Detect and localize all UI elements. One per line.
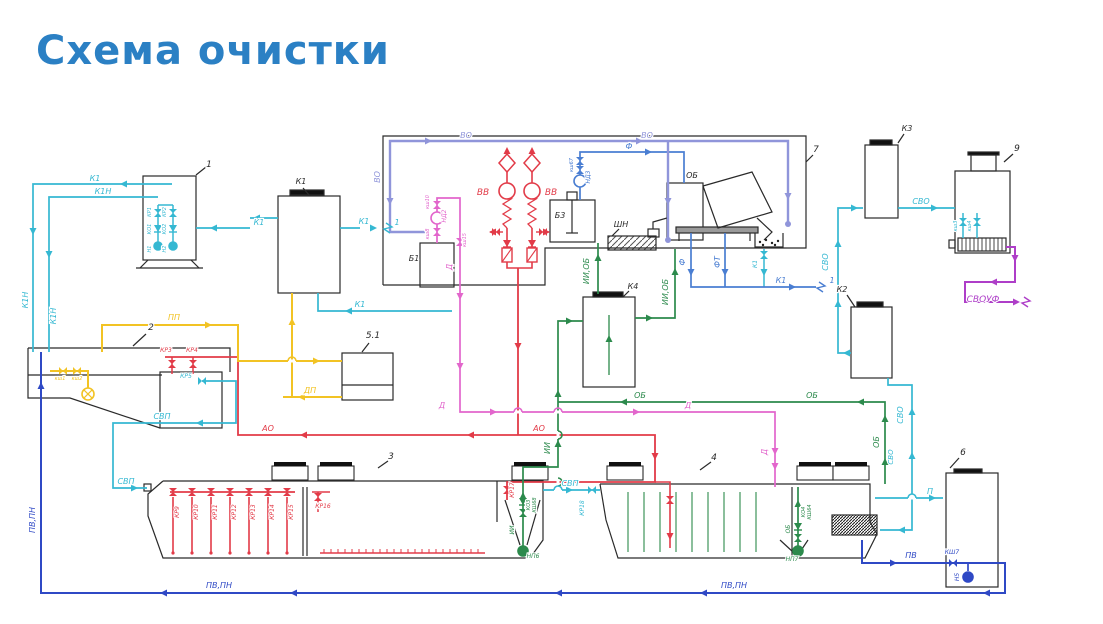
flow-arrow xyxy=(160,590,167,597)
line-k1n-v1: К1Н xyxy=(21,292,30,309)
valve xyxy=(959,222,967,226)
valve xyxy=(433,205,441,209)
tank3-aeration-lbl-1: КР10 xyxy=(193,504,200,520)
line-break xyxy=(817,282,825,292)
flow-arrow xyxy=(205,322,212,329)
valve-ksh8: кш8 xyxy=(425,229,431,240)
blower-vv2: ВВ xyxy=(545,188,557,198)
valve xyxy=(168,360,176,364)
flow-arrow xyxy=(30,228,37,235)
tank3-aeration-lbl-4: КР13 xyxy=(250,504,257,520)
flow-arrow xyxy=(835,300,842,307)
tankK1-body xyxy=(278,196,340,293)
tank3-aeration-lbl-6: КР15 xyxy=(288,504,295,520)
tank4-hatch-1-lid xyxy=(609,462,641,466)
tank6-body xyxy=(946,473,998,587)
line-vo-2: ВО xyxy=(641,131,653,140)
flow-arrow xyxy=(46,251,53,258)
tank3-hatch-3-lid xyxy=(514,462,546,466)
pump-n1: Н1 xyxy=(147,246,153,253)
air-filter xyxy=(499,154,515,172)
line-pv: ПВ xyxy=(905,551,917,560)
pump-n2: Н2 xyxy=(162,246,168,253)
valve xyxy=(576,166,584,170)
item2-left xyxy=(28,348,160,428)
flow-arrow xyxy=(772,463,779,470)
pump-nd2: НД2 xyxy=(441,209,448,222)
valve xyxy=(168,364,176,368)
flow-arrow xyxy=(120,181,127,188)
line-ft-v: ФТ xyxy=(713,255,722,268)
leader-4 xyxy=(700,462,711,470)
k1tank-bottom-drain xyxy=(318,293,452,311)
flow-arrow xyxy=(555,590,562,597)
line-k1n-a: К1Н xyxy=(95,187,112,196)
unit1-leg-l xyxy=(140,260,148,268)
valve xyxy=(666,500,674,504)
flow-arrow xyxy=(425,138,432,145)
valve-kr2: КР2 xyxy=(162,207,168,217)
valve xyxy=(794,538,802,542)
flow-arrow xyxy=(789,284,796,291)
line-pvpn-2: ПВ,ПН xyxy=(721,581,747,590)
valve xyxy=(973,218,981,222)
svp-line xyxy=(113,381,236,488)
flow-arrow xyxy=(529,147,536,154)
valve-ksh67: кш67 xyxy=(569,157,575,172)
line-ob-h1: ОБ xyxy=(634,391,646,400)
valve xyxy=(576,157,584,161)
line-svp-3: СВП xyxy=(561,479,578,488)
tank3-hatch-1 xyxy=(272,466,308,480)
tank4-hatch-2-lid xyxy=(799,462,831,466)
sludge-dot xyxy=(771,242,773,244)
flow-arrow xyxy=(633,409,640,416)
tank3-aeration-dot xyxy=(171,551,174,554)
flow-arrow xyxy=(909,408,916,415)
valve xyxy=(314,493,322,497)
valve-kr17: КР17 xyxy=(509,482,516,498)
pump xyxy=(524,183,540,199)
line-d-h1: Д xyxy=(438,401,445,410)
flow-arrow xyxy=(210,225,217,232)
tank-k4: К4 xyxy=(628,282,639,291)
uv-lamp xyxy=(958,238,1006,251)
air-filter xyxy=(524,154,540,172)
valve xyxy=(959,218,967,222)
tank4-cone-l xyxy=(780,540,793,552)
pump-np7: НП7 xyxy=(786,556,799,563)
valve-ksh2: кш2 xyxy=(72,376,83,382)
flow-arrow xyxy=(785,193,792,200)
tank3-hatch-2-lid xyxy=(320,462,352,466)
line-ii-v1: ИИ xyxy=(543,442,552,454)
line-svo-h1: СВО xyxy=(912,197,929,206)
flow-arrow xyxy=(457,363,464,370)
num-1: 1 xyxy=(206,160,212,170)
sludge-dot xyxy=(774,244,776,246)
crossing-gap xyxy=(557,478,560,486)
line-svouf: СВОУФ xyxy=(967,295,1000,305)
flow-arrow xyxy=(595,254,602,261)
line-k1-drain: К1 xyxy=(355,300,366,309)
valve-ksh3: кш3 xyxy=(953,221,959,232)
flex-connector xyxy=(503,199,511,228)
check-valve xyxy=(154,225,162,232)
leader-3 xyxy=(378,461,388,468)
valve-ksh64: КШ64 xyxy=(807,504,813,519)
valve xyxy=(63,367,67,375)
treatment-scheme-diagram: КР9КР10КР11КР12КР13КР14КР1512345.1679К1К… xyxy=(0,0,1103,624)
valve-ksh15: кш15 xyxy=(462,233,468,247)
pump-n5: Н5 xyxy=(954,573,961,582)
tank3-cone-l xyxy=(505,500,520,545)
flow-arrow xyxy=(882,415,889,422)
flow-arrow xyxy=(909,452,916,459)
flow-arrow xyxy=(345,308,352,315)
pump xyxy=(154,242,162,250)
flow-arrow xyxy=(851,205,858,212)
valve xyxy=(794,534,802,538)
valve xyxy=(169,213,177,217)
valve-kr1: КР1 xyxy=(147,207,153,217)
tank-b1: Б1 xyxy=(409,254,420,263)
leader-9 xyxy=(1004,154,1013,162)
flow-arrow xyxy=(898,527,905,534)
k1n-out xyxy=(49,197,158,352)
unit51-body xyxy=(342,353,393,400)
k2-body xyxy=(851,307,892,378)
flow-arrow xyxy=(520,492,527,499)
tank3-hatch-1-lid xyxy=(274,462,306,466)
valve xyxy=(77,367,81,375)
flow-arrow xyxy=(1012,255,1019,262)
valve-kr16: КР16 xyxy=(315,503,331,510)
check-valve xyxy=(503,240,511,247)
num-7: 7 xyxy=(813,145,819,155)
equipment-layer xyxy=(28,134,1013,587)
valve xyxy=(189,360,197,364)
valve xyxy=(433,201,441,205)
tank3-aeration-lbl-3: КР12 xyxy=(231,504,238,520)
line-f: Ф xyxy=(626,142,633,151)
line-iiob-1: ИИ,ОБ xyxy=(582,257,591,284)
line-k1n-v2: К1Н xyxy=(49,308,58,325)
flow-arrow xyxy=(1013,299,1020,306)
line-svo-v1: СВО xyxy=(821,253,830,270)
tank3-aeration-dot xyxy=(228,551,231,554)
tank3-aeration-dot xyxy=(266,551,269,554)
valve xyxy=(539,228,543,236)
crossing-gap xyxy=(554,411,562,414)
crossing-gap xyxy=(288,360,296,363)
flow-arrow xyxy=(38,382,45,389)
sludge-dot xyxy=(762,244,764,246)
tank3-aeration-dot xyxy=(285,551,288,554)
flow-arrow xyxy=(555,440,562,447)
uv-cap-lid xyxy=(968,152,999,155)
line-ao-2: АО xyxy=(532,424,545,433)
leader-2 xyxy=(133,334,146,346)
tank3-aeration-lbl-5: КР14 xyxy=(269,504,276,520)
press-body xyxy=(703,172,772,228)
flow-arrow xyxy=(290,590,297,597)
line-f-v: Ф xyxy=(678,258,687,265)
valve xyxy=(202,377,206,385)
line-break xyxy=(1022,297,1030,307)
line-k1-in: К1 xyxy=(254,218,265,227)
num-9: 9 xyxy=(1014,144,1020,154)
tank3-hatch-3 xyxy=(512,466,548,480)
valve xyxy=(433,232,441,236)
line-d-v1: Д xyxy=(445,264,454,271)
flow-arrow xyxy=(196,420,203,427)
flow-arrow xyxy=(672,268,679,275)
line-k1-ref: К1 xyxy=(359,217,370,226)
leader-7 xyxy=(806,155,813,162)
valve xyxy=(760,255,768,259)
valve-ksh68: КШ68 xyxy=(532,497,538,512)
sludge-dot xyxy=(759,241,761,243)
ao-tank4-drop xyxy=(655,482,670,548)
svouf-line xyxy=(965,247,1018,302)
press-chute xyxy=(757,218,772,240)
valve-kr3: КР3 xyxy=(160,347,172,354)
leader-shn xyxy=(612,229,619,236)
valve-ksh1: кш1 xyxy=(55,376,66,382)
line-d-h2: Д xyxy=(684,401,691,410)
valve-ksh7: КШ7 xyxy=(945,549,960,556)
svo-riser xyxy=(888,378,912,494)
line-vo-1: ВО xyxy=(460,131,472,140)
valve-kr5: КР5 xyxy=(180,373,192,380)
valve-kr4: КР4 xyxy=(186,347,198,354)
line-d-v2: Д xyxy=(760,449,769,456)
valve xyxy=(198,377,202,385)
valve xyxy=(666,496,674,500)
valve xyxy=(169,209,177,213)
tank3-aeration-dot xyxy=(247,551,250,554)
line-k1-ref2: К1 xyxy=(776,276,787,285)
tank3-aeration-lbl-2: КР11 xyxy=(212,504,219,520)
line-pvpn-v: ПВ,ПН xyxy=(28,507,37,533)
scheme-page: Схема очистки КР9КР10КР11КР12КР13КР14КР1… xyxy=(0,0,1103,624)
unit-ob: ОБ xyxy=(686,171,698,180)
ob-platform xyxy=(676,227,758,233)
tank4-hatch-1 xyxy=(607,466,643,480)
flow-arrow xyxy=(772,448,779,455)
valve xyxy=(592,486,596,494)
uv-cap xyxy=(971,155,996,171)
valve xyxy=(576,170,584,174)
leader-51 xyxy=(362,343,369,352)
crossing-gap xyxy=(554,489,562,492)
p-recirc xyxy=(880,498,912,530)
tank3-aeration-lbl-0: КР9 xyxy=(174,506,181,518)
line-svp-2: СВП xyxy=(117,477,134,486)
flow-arrow xyxy=(289,318,296,325)
line-iiob-2: ИИ,ОБ xyxy=(661,278,670,305)
k3-lid xyxy=(870,140,892,145)
flow-arrow xyxy=(387,198,394,205)
crossing-gap xyxy=(557,431,560,439)
flow-arrow xyxy=(490,409,497,416)
check-valve xyxy=(169,225,177,232)
flow-arrow xyxy=(515,343,522,350)
blower-vv1: ВВ xyxy=(477,188,489,198)
flow-arrow xyxy=(761,269,768,276)
line-pp: ПП xyxy=(168,313,180,322)
valve xyxy=(519,513,527,517)
flow-arrow xyxy=(467,432,474,439)
num-6: 6 xyxy=(960,448,966,458)
tank-k3: К3 xyxy=(902,124,913,133)
check-valve xyxy=(528,240,536,247)
flow-arrow xyxy=(843,350,850,357)
valve xyxy=(953,559,957,567)
flow-arrow xyxy=(795,500,802,507)
valve xyxy=(154,209,162,213)
tank4-hatch-3 xyxy=(833,466,869,480)
line-pvpn-1: ПВ,ПН xyxy=(206,581,232,590)
item2-top xyxy=(28,348,230,372)
valve xyxy=(314,497,322,501)
line-k1-small: К1 xyxy=(752,260,759,268)
b3-motor xyxy=(567,192,577,200)
flow-arrow xyxy=(566,318,573,325)
valve xyxy=(576,161,584,165)
tank3-hatch-2 xyxy=(318,466,354,480)
ref-2a: 1 xyxy=(829,276,834,285)
shn-link xyxy=(653,218,667,229)
flow-arrow xyxy=(620,399,627,406)
crossing-gap xyxy=(514,411,522,414)
k3-body xyxy=(865,145,898,218)
tank-k2: К2 xyxy=(837,285,848,294)
tank4-hatch-2 xyxy=(797,466,833,480)
tank3-aeration-dot xyxy=(190,551,193,554)
line-ob-h2: ОБ xyxy=(806,391,818,400)
flow-arrow xyxy=(700,590,707,597)
crossing-gap xyxy=(908,497,916,500)
pump xyxy=(793,546,803,556)
valve xyxy=(433,228,441,232)
check-valve xyxy=(794,523,802,530)
line-p: П xyxy=(927,487,933,496)
pump xyxy=(499,183,515,199)
flow-arrow xyxy=(606,335,613,342)
valve xyxy=(189,364,197,368)
flow-arrow xyxy=(890,560,897,567)
valve xyxy=(59,367,63,375)
k2-lid xyxy=(857,302,883,307)
valve-ko2: КО2 xyxy=(162,224,168,235)
pump-nd3: НД3 xyxy=(585,170,592,183)
flow-arrow xyxy=(667,533,674,540)
leader-6 xyxy=(950,458,959,468)
line-ob-v1: ОБ xyxy=(872,436,881,448)
line-k1-a: К1 xyxy=(90,174,101,183)
flow-arrow xyxy=(990,279,997,286)
num-3: 3 xyxy=(388,452,394,462)
flow-arrow xyxy=(857,399,864,406)
valve-ksh4: кш4 xyxy=(967,221,973,232)
sludge-dot xyxy=(777,240,779,242)
leader-k4 xyxy=(623,291,629,297)
valve xyxy=(154,213,162,217)
flow-arrow xyxy=(835,240,842,247)
unit1-leg-r xyxy=(191,260,199,268)
num-4: 4 xyxy=(711,453,717,463)
flow-arrow xyxy=(652,453,659,460)
leader-1 xyxy=(196,167,206,175)
tank6-lid xyxy=(954,469,982,473)
tank3-aeration-dot xyxy=(209,551,212,554)
line-svp-1: СВП xyxy=(153,412,170,421)
valve xyxy=(949,559,953,567)
pp-line xyxy=(102,325,342,361)
flow-arrow xyxy=(646,315,653,322)
line-ob-v2: ОБ xyxy=(785,525,792,534)
pump xyxy=(963,572,973,582)
unit-shn: ШН xyxy=(614,220,629,229)
tank-b3: Б3 xyxy=(555,211,566,220)
line-vo-v: ВО xyxy=(373,171,382,183)
flow-arrow xyxy=(983,590,990,597)
line-ao-1: АО xyxy=(261,424,274,433)
tank4-hatch-3-lid xyxy=(835,462,867,466)
valve-kr18: КР18 xyxy=(579,500,586,516)
flow-arrow xyxy=(457,293,464,300)
ref-1a: 1 xyxy=(394,218,399,227)
valve xyxy=(973,222,981,226)
valve xyxy=(73,367,77,375)
flow-arrow xyxy=(300,432,307,439)
flow-arrow xyxy=(313,358,320,365)
num-2: 2 xyxy=(148,323,154,333)
line-ii-v2: ИИ xyxy=(509,525,516,534)
line-svo-v2: СВО xyxy=(896,406,905,423)
pump-np6: НП6 xyxy=(527,553,540,560)
leader-k3 xyxy=(898,134,904,143)
flow-arrow xyxy=(555,390,562,397)
valve xyxy=(496,228,500,236)
flow-arrow xyxy=(688,269,695,276)
flow-arrow xyxy=(722,269,729,276)
vo-main xyxy=(390,141,788,232)
valve xyxy=(760,251,768,255)
sludge-dot xyxy=(765,239,767,241)
uv-stub xyxy=(949,240,955,248)
flow-arrow xyxy=(645,149,652,156)
flow-arrow xyxy=(504,147,511,154)
valve-ko1: КО1 xyxy=(147,224,153,235)
leader-k2 xyxy=(847,295,855,307)
flex-connector xyxy=(528,199,536,228)
flow-arrow xyxy=(665,198,672,205)
pipe-connector xyxy=(665,237,671,243)
tank-k1: К1 xyxy=(296,177,307,186)
valve-ksh10: кш10 xyxy=(425,195,431,209)
line-dp: ДП xyxy=(303,386,316,395)
valve xyxy=(588,486,592,494)
pipe-connector xyxy=(785,221,791,227)
line-svo-v3: СВО xyxy=(887,449,895,465)
flow-arrow xyxy=(370,225,377,232)
num-5-1: 5.1 xyxy=(366,331,380,341)
flow-arrow xyxy=(931,205,938,212)
pump xyxy=(169,242,177,250)
